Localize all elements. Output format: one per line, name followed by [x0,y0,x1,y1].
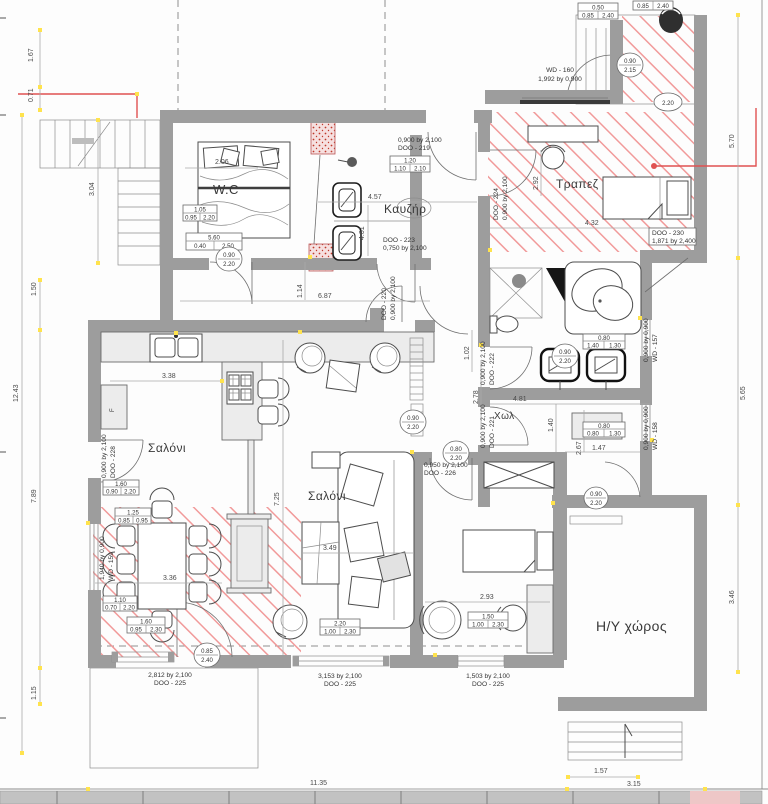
dim-box-10-top: 1.10 [114,598,126,604]
scale-bar [0,791,762,804]
stairs-top-left [40,120,160,265]
bed-top-left [198,142,290,238]
dim-circle-4-bot: 2.20 [559,359,571,365]
door-label-219-size: 0,900 by 2,100 [398,137,442,144]
window-label-159-code: WD - 159 [108,552,115,580]
dim-box-11: 1.60 0.95 2.30 [127,617,165,634]
door-label-223-size: 0,750 by 2,100 [383,245,427,252]
stove [227,372,253,404]
dim-box-7: 0.80 0.80 1.30 [583,422,625,438]
window-label-157-size: 0,900 by 0,900 [643,318,650,362]
dim-box-8: 1.60 0.90 2.20 [103,480,139,496]
door-label-220-code: DOO - 220 [381,288,388,320]
round-chair-2 [370,343,400,373]
dim-circle-6-top: 0.80 [450,447,462,453]
dim-box-3-l: 1.10 [394,167,406,173]
dim-right-565: 5.65 [740,386,747,400]
dim-725: 7.25 [274,492,281,506]
window-label-158-size: 0,900 by 0,900 [643,406,650,450]
dim-circle-5-top: 0.90 [407,416,419,422]
dim-left-150: 1.50 [31,282,38,296]
dim-140: 1.40 [548,418,555,432]
dim-right-570: 5.70 [729,134,736,148]
round-chair-3 [273,605,307,639]
dim-box-11-r: 2.30 [150,628,162,634]
dim-206: 2.06 [215,159,229,166]
fridge [101,385,127,429]
dim-box-4-top: 5.60 [208,236,220,242]
dim-circle-1: 0.90 2.20 [216,247,242,271]
tv-unit [227,440,271,593]
door-label-225a-code: DOO - 225 [154,680,186,687]
dim-circle-2-bot: 2.15 [624,68,636,74]
shower-head [512,274,526,288]
dim-circle-7-bot: 2.40 [201,658,213,664]
dim-box-8-r: 2.20 [124,490,136,496]
dim-left-789: 7.89 [31,489,38,503]
dim-circle-7-top: 0.85 [201,649,213,655]
door-label-225c-size: 1,503 by 2,100 [466,673,510,680]
dim-circle-1-top: 0.90 [223,253,235,259]
dim-circle-8-top: 0.90 [590,492,602,498]
bar-stool-2 [258,404,289,426]
door-label-224-code: DOO - 224 [493,188,500,220]
dim-circle-2-top: 0.90 [624,59,636,65]
room-label-computer-room: Η/Υ χώρος [596,618,667,634]
vanity-sink-2 [587,349,625,390]
dim-box-4-l: 0.40 [194,244,206,250]
dim-circle-3: 2.20 [654,93,682,111]
room-label-living-left: Σαλόνι [148,441,186,455]
door-arc-hall-wc [605,462,640,497]
window-label-159-size: 1,940 by 0,900 [99,536,106,580]
dim-292: 2.92 [533,176,540,190]
door-label-220-size: 0,900 by 2,100 [390,276,397,320]
dim-box-9-top: 1.25 [127,511,139,517]
dim-102: 1.02 [464,346,471,360]
floor-plan-sheet: 0.50 0.85 2.40 0.85 2.40 1.20 1.10 2.10 … [0,0,768,804]
bed-bottom [463,530,535,572]
door-label-228-size: 0,900 by 2,100 [101,434,108,478]
door-arc-222 [490,347,532,389]
dining-table [138,523,186,609]
dim-box-11-top: 1.60 [140,620,152,626]
room-label-wc: W.C [213,182,239,197]
dim-box-12-top: 2.20 [334,622,346,628]
fridge-label: F [110,408,116,412]
dim-box-1-top: 0.50 [592,6,604,12]
dim-circle-8-bot: 2.20 [590,501,602,507]
door-label-228-code: DOO - 228 [110,446,117,478]
dim-box-13-r: 2.30 [492,623,504,629]
dim-box-2-l: 0.85 [637,4,649,10]
dim-left-167: 1.67 [28,48,35,62]
window-label-158-code: WD - 158 [652,422,659,450]
dim-box-6-r: 1.30 [609,344,621,350]
dim-432: 4.32 [585,220,599,227]
dim-box-9: 1.25 0.85 0.95 [115,508,151,525]
dim-box-5-r: 2.20 [203,216,215,222]
window-label-160-code: WD - 160 [546,67,574,74]
dim-338: 3.38 [162,373,176,380]
dim-box-10: 1.10 0.70 2.20 [103,596,137,612]
door-label-224-size: 0,900 by 2,100 [502,176,509,220]
dim-circle-8: 0.90 2.20 [584,487,608,509]
dim-349: 3.49 [323,545,337,552]
door-label-225b-size: 3,153 by 2,100 [318,673,362,680]
dim-circle-4: 0.90 2.20 [552,344,578,368]
door-label-230-code: DOO - 230 [652,230,684,237]
dim-circle-3-top: 2.20 [662,101,674,107]
dim-box-7-top: 0.80 [598,424,610,430]
dim-box-7-r: 1.30 [609,432,621,438]
floor-plan-drawing: 0.50 0.85 2.40 0.85 2.40 1.20 1.10 2.10 … [0,0,768,804]
dim-left-1243: 12.43 [13,384,20,402]
room-label-dining: Τραπεζ [556,177,599,191]
door-label-230-size: 1,871 by 2,400 [652,238,696,245]
window-label-157-code: WD - 157 [652,334,659,362]
dim-left-115: 1.15 [31,686,38,700]
dim-box-10-l: 0.70 [105,606,117,612]
dim-box-2-r: 2.40 [657,4,669,10]
dim-box-3-r: 2.10 [414,167,426,173]
dim-circle-4-top: 0.90 [559,350,571,356]
window-label-160-size: 1,992 by 0,900 [538,76,582,83]
dim-box-8-l: 0.90 [106,490,118,496]
dim-147: 1.47 [592,445,606,452]
door-label-226-size: 0,950 by 2,100 [424,462,468,469]
chair-dark-top-right [659,7,683,33]
dim-circle-5-bot: 2.20 [407,425,419,431]
door-label-226-code: DOO - 226 [424,470,456,477]
dim-box-6-top: 0.80 [598,336,610,342]
dim-box-13-l: 1.00 [472,623,484,629]
bar-stool-1 [258,378,289,400]
dim-box-5-l: 0.95 [185,216,197,222]
dim-box-6-l: 1.40 [587,344,599,350]
dim-box-9-l: 0.85 [118,519,130,525]
door-label-225b-code: DOO - 225 [324,681,356,688]
dim-box-8-top: 1.60 [115,482,127,488]
dim-bottom-315: 3.15 [627,781,641,788]
dim-box-7-l: 0.80 [587,432,599,438]
dim-267: 2.67 [576,441,583,455]
dim-box-11-l: 0.95 [130,628,142,634]
dim-336: 3.36 [163,575,177,582]
dim-293: 2.93 [480,594,494,601]
dim-box-12-l: 1.00 [324,630,336,636]
door-label-222-size: 0,900 by 2,100 [480,341,487,385]
dim-box-1-l: 0.85 [582,14,594,20]
door-label-222-code: DOO - 222 [489,353,496,385]
dim-box-6: 0.80 1.40 1.30 [583,334,625,350]
dim-box-10-r: 2.20 [123,606,135,612]
dim-278: 2.78 [473,390,480,404]
computer-room-furniture [570,516,622,524]
dim-circle-2: 0.90 2.15 [617,53,643,77]
dim-box-2: 0.85 2.40 [633,1,673,10]
dim-box-9-r: 0.95 [136,519,148,525]
dim-401: 4.01 [359,226,366,240]
round-chair-1 [295,343,325,373]
dim-circle-7: 0.85 2.40 [194,643,220,667]
dim-bottom-1135: 11.35 [310,780,327,787]
door-label-221-size: 0,900 by 2,100 [480,404,487,448]
dim-box-13: 1.50 1.00 2.30 [468,612,508,629]
dim-481: 4.81 [513,396,527,403]
dim-circle-5: 0.90 2.20 [400,410,426,434]
dim-box-12-r: 2.30 [344,630,356,636]
dim-box-1-r: 2.40 [602,14,614,20]
door-label-219-code: DOO - 219 [398,145,430,152]
room-label-boiler: Καυζήρ [384,202,426,216]
dim-457: 4.57 [368,194,382,201]
door-label-225c-code: DOO - 225 [472,681,504,688]
dim-circle-1-bot: 2.20 [223,262,235,268]
dim-box-13-top: 1.50 [482,615,494,621]
dim-687: 6.87 [318,293,332,300]
dim-box-12: 2.20 1.00 2.30 [320,619,360,636]
dim-114: 1.14 [297,284,304,298]
door-label-223-code: DOO - 223 [383,237,415,244]
door-label-230: DOO - 230 1,871 by 2,400 [649,228,696,245]
door-label-225a-size: 2,812 by 2,100 [148,672,192,679]
dim-box-5-top: 1.05 [194,208,206,214]
dim-box-1: 0.50 0.85 2.40 [578,3,618,20]
dim-box-3-top: 1.20 [404,159,416,165]
bathroom-fixtures [490,261,641,390]
dim-box-5: 1.05 0.95 2.20 [183,205,217,222]
room-label-hall: Χωλ [494,411,515,422]
dim-left-071: 0.71 [28,88,35,102]
stipple-column-1 [311,122,335,154]
room-label-living-center: Σαλόνι [308,489,346,503]
dim-left-304: 3.04 [89,182,96,196]
exterior-steps [568,722,682,760]
dim-right-346: 3.46 [729,590,736,604]
dim-bottom-157: 1.57 [594,768,608,775]
dim-box-3: 1.20 1.10 2.10 [390,156,430,173]
